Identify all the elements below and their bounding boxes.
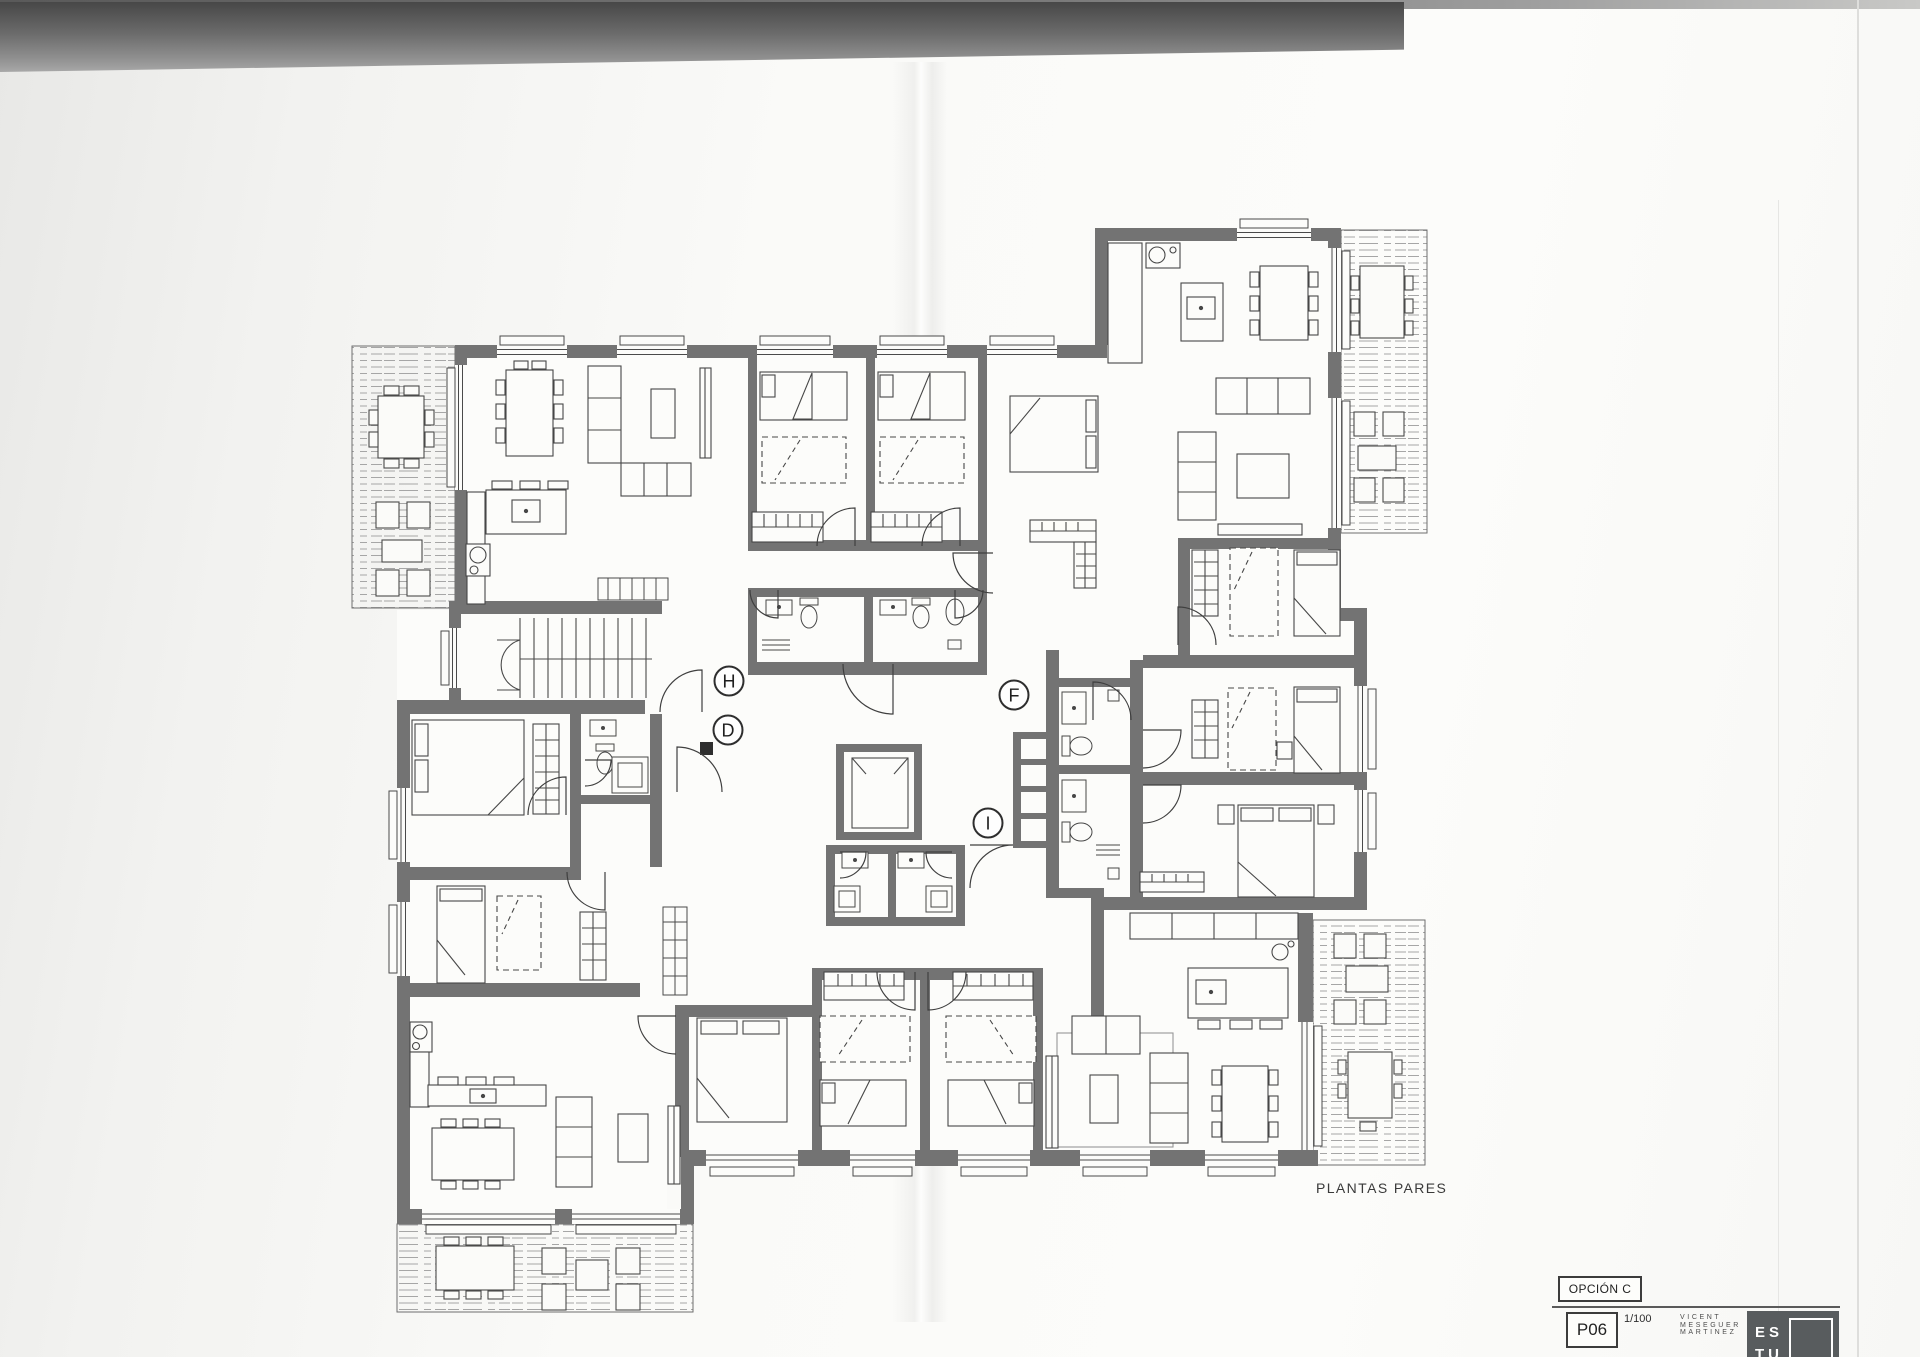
logo-text-line: TU bbox=[1755, 1346, 1783, 1357]
elevator bbox=[852, 758, 908, 828]
architect-name-line: VICENT bbox=[1680, 1314, 1741, 1322]
title-block-divider bbox=[1552, 1306, 1840, 1308]
option-label-box: OPCIÓN C bbox=[1558, 1276, 1642, 1302]
architect-name-line: MARTINEZ bbox=[1680, 1329, 1741, 1337]
architect-name-line: MESEGUER bbox=[1680, 1322, 1741, 1330]
logo-text-line: ES bbox=[1755, 1324, 1783, 1341]
unit-marker-h: H bbox=[714, 666, 745, 697]
studio-logo: ES TU bbox=[1747, 1311, 1839, 1357]
scanned-floorplan-sheet: H D F I PLANTAS PARES OPCIÓN C P06 1/100… bbox=[0, 0, 1920, 1357]
floor-plan-drawing bbox=[0, 0, 1920, 1357]
door-jamb-mark bbox=[700, 742, 713, 755]
plan-caption: PLANTAS PARES bbox=[1316, 1180, 1447, 1196]
drawing-scale: 1/100 bbox=[1624, 1313, 1652, 1325]
sheet-number-box: P06 bbox=[1566, 1312, 1618, 1348]
logo-square-icon bbox=[1789, 1318, 1833, 1357]
unit-marker-f: F bbox=[999, 680, 1030, 711]
architect-name: VICENT MESEGUER MARTINEZ bbox=[1680, 1314, 1741, 1337]
unit-marker-d: D bbox=[713, 715, 744, 746]
unit-marker-i: I bbox=[973, 808, 1004, 839]
